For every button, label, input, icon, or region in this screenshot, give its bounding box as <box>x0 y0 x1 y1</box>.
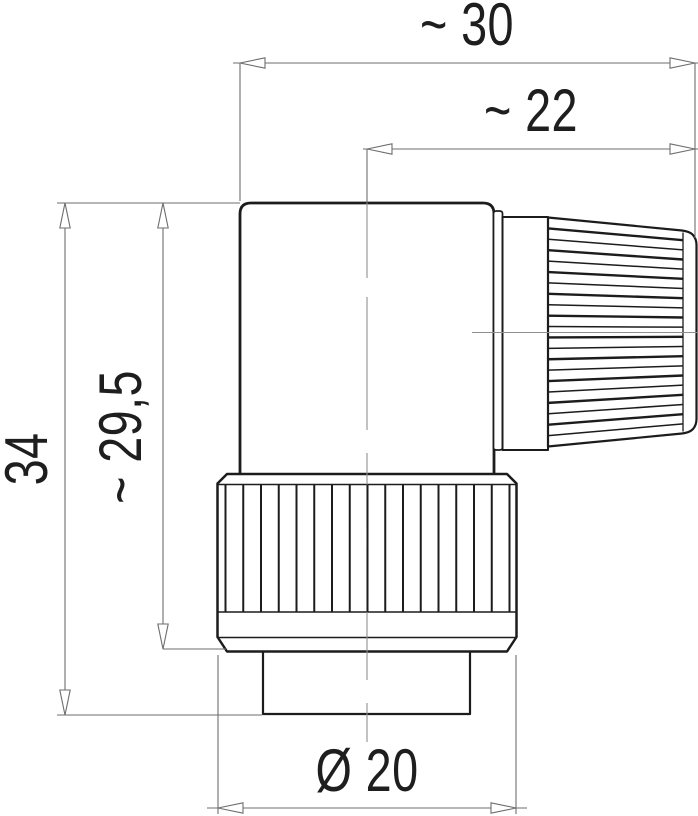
dimension-arrowhead <box>670 58 695 68</box>
dimension-axis-to-cable-end <box>363 144 698 203</box>
dimension-arrowhead <box>158 203 168 228</box>
connector-technical-drawing: ~ 30 ~ 22 34 ~ 29,5 Ø 20 <box>0 0 698 816</box>
dimension-arrowhead <box>158 624 168 649</box>
connector-part-shapes <box>218 203 697 714</box>
neck-washer <box>494 211 503 450</box>
dim-label-height-to-coupling-ring: ~ 29,5 <box>87 370 154 504</box>
dimension-height-to-coupling-ring <box>158 203 226 649</box>
dim-label-axis-to-cable-end: ~ 22 <box>484 77 578 144</box>
drawing-canvas: ~ 30 ~ 22 34 ~ 29,5 Ø 20 <box>0 0 698 816</box>
dim-label-overall-height: 34 <box>0 433 60 486</box>
gland-collar <box>503 217 549 450</box>
dimension-arrowhead <box>367 144 392 154</box>
dim-label-overall-width: ~ 30 <box>420 0 514 58</box>
dimension-arrowhead <box>218 803 243 813</box>
dimension-arrowhead <box>60 203 70 228</box>
dim-label-coupling-ring-diameter: Ø 20 <box>315 737 418 804</box>
dimension-arrowhead <box>491 803 516 813</box>
dimension-arrowhead <box>240 58 265 68</box>
dimension-arrowhead <box>670 144 695 154</box>
dimension-arrowhead <box>60 690 70 715</box>
